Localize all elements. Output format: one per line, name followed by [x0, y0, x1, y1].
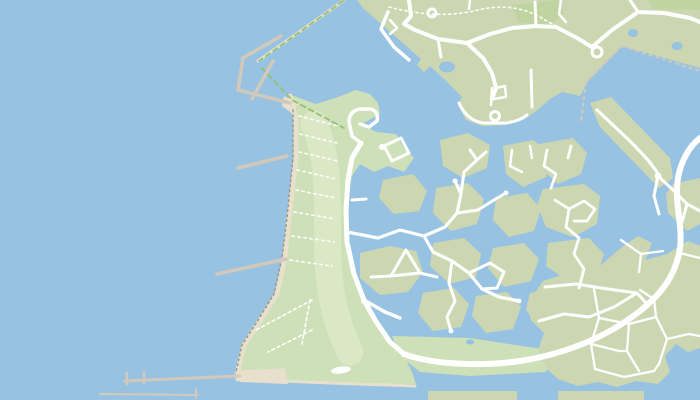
pond [466, 340, 474, 345]
map-viewport[interactable]: Coastal map: open sea on the west with b… [0, 0, 700, 400]
map-canvas[interactable]: Coastal map: open sea on the west with b… [0, 0, 700, 400]
pond [439, 62, 455, 73]
pond [672, 42, 683, 50]
pond [628, 29, 638, 37]
